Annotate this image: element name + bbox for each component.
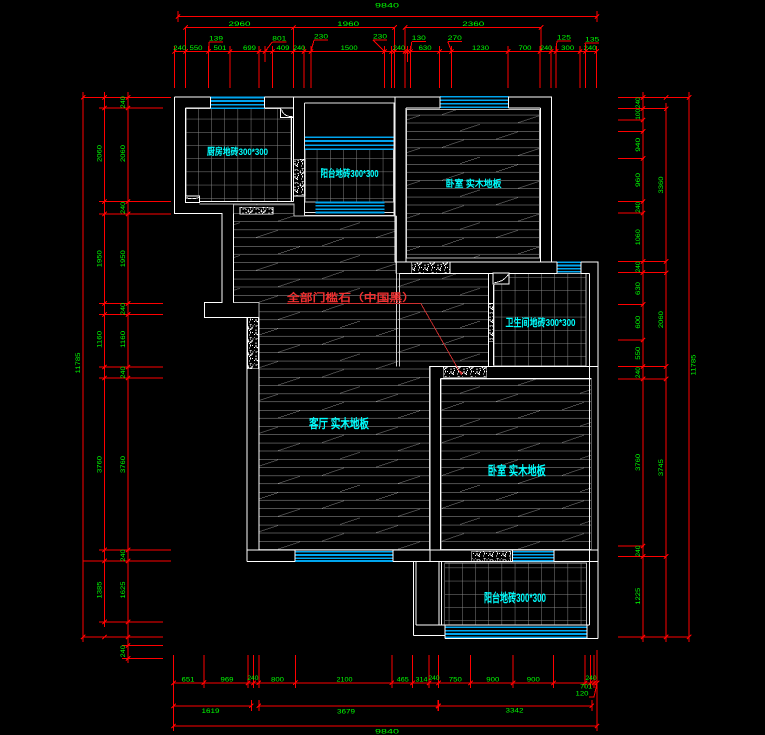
svg-text:11785: 11785 <box>75 352 82 374</box>
svg-text:230: 230 <box>314 34 329 41</box>
svg-text:700: 700 <box>519 45 533 52</box>
svg-text:240: 240 <box>293 45 306 52</box>
svg-text:240: 240 <box>540 45 553 52</box>
svg-text:960: 960 <box>635 172 642 187</box>
svg-text:240: 240 <box>635 201 642 213</box>
svg-text:630: 630 <box>635 281 642 295</box>
svg-text:阳台地砖300*300: 阳台地砖300*300 <box>321 167 379 180</box>
svg-text:1060: 1060 <box>635 229 642 246</box>
svg-text:2960: 2960 <box>229 21 252 28</box>
svg-text:701: 701 <box>580 684 593 691</box>
svg-text:240: 240 <box>635 545 642 557</box>
svg-text:1625: 1625 <box>120 581 127 599</box>
svg-text:3745: 3745 <box>658 459 665 477</box>
svg-text:2360: 2360 <box>462 21 485 28</box>
svg-text:300: 300 <box>561 45 575 52</box>
svg-text:120: 120 <box>576 691 590 698</box>
svg-text:135: 135 <box>585 37 600 44</box>
svg-text:900: 900 <box>486 676 500 683</box>
svg-text:900: 900 <box>527 676 541 683</box>
svg-text:240: 240 <box>120 366 127 379</box>
svg-text:240: 240 <box>120 201 127 214</box>
svg-text:550: 550 <box>635 346 642 360</box>
svg-text:651: 651 <box>182 676 196 683</box>
svg-text:1950: 1950 <box>120 250 127 268</box>
svg-text:卫生间地砖300*300: 卫生间地砖300*300 <box>506 316 576 329</box>
svg-text:1385: 1385 <box>97 581 104 599</box>
svg-text:630: 630 <box>419 45 433 52</box>
svg-text:940: 940 <box>635 137 642 152</box>
svg-text:卧室 实木地板: 卧室 实木地板 <box>446 178 502 190</box>
svg-text:600: 600 <box>635 315 642 329</box>
svg-text:9840: 9840 <box>375 3 400 10</box>
svg-text:969: 969 <box>221 676 235 683</box>
svg-text:3760: 3760 <box>635 453 642 471</box>
svg-text:240: 240 <box>247 675 259 682</box>
svg-text:501: 501 <box>214 45 228 52</box>
svg-text:3679: 3679 <box>337 709 356 716</box>
svg-text:314: 314 <box>416 676 429 683</box>
svg-text:240: 240 <box>120 645 127 658</box>
svg-text:全部门槛石（中国黑）: 全部门槛石（中国黑） <box>286 291 415 304</box>
svg-text:2060: 2060 <box>120 144 127 162</box>
svg-text:240: 240 <box>635 97 642 109</box>
svg-text:240: 240 <box>120 549 127 562</box>
svg-text:699: 699 <box>243 45 257 52</box>
svg-text:1230: 1230 <box>472 45 490 52</box>
svg-text:550: 550 <box>190 45 204 52</box>
svg-text:1160: 1160 <box>120 330 127 348</box>
svg-text:240: 240 <box>393 45 406 52</box>
svg-text:139: 139 <box>209 36 224 43</box>
svg-text:125: 125 <box>557 35 572 42</box>
svg-text:1225: 1225 <box>635 587 642 605</box>
svg-text:240: 240 <box>120 302 127 315</box>
svg-text:465: 465 <box>397 676 410 683</box>
svg-text:2060: 2060 <box>97 144 104 162</box>
svg-text:240: 240 <box>586 675 598 682</box>
svg-text:409: 409 <box>277 45 291 52</box>
svg-text:1619: 1619 <box>202 708 221 715</box>
svg-text:9840: 9840 <box>375 729 400 735</box>
svg-text:240: 240 <box>173 45 187 52</box>
svg-text:1160: 1160 <box>97 330 104 348</box>
svg-text:厨房地砖300*300: 厨房地砖300*300 <box>207 146 268 158</box>
svg-text:750: 750 <box>449 676 463 683</box>
svg-text:11785: 11785 <box>691 354 698 376</box>
svg-text:阳台地砖300*300: 阳台地砖300*300 <box>484 590 546 605</box>
svg-text:240: 240 <box>429 675 441 682</box>
svg-text:270: 270 <box>448 35 463 42</box>
svg-text:800: 800 <box>271 676 285 683</box>
svg-text:1960: 1960 <box>337 21 360 28</box>
svg-text:240: 240 <box>120 96 127 109</box>
svg-text:240: 240 <box>635 261 642 273</box>
svg-text:240: 240 <box>635 367 642 379</box>
svg-text:卧室 实木地板: 卧室 实木地板 <box>488 463 546 478</box>
svg-text:130: 130 <box>412 35 427 42</box>
svg-text:2100: 2100 <box>337 676 354 683</box>
svg-text:3760: 3760 <box>120 455 127 473</box>
svg-text:1500: 1500 <box>341 45 359 52</box>
svg-text:2060: 2060 <box>658 311 665 329</box>
svg-text:3760: 3760 <box>97 455 104 473</box>
svg-text:1950: 1950 <box>97 250 104 268</box>
svg-text:3360: 3360 <box>658 176 665 194</box>
svg-text:230: 230 <box>373 34 388 41</box>
svg-text:客厅 实木地板: 客厅 实木地板 <box>308 416 369 431</box>
svg-text:100: 100 <box>635 108 642 120</box>
svg-text:3342: 3342 <box>506 708 525 715</box>
svg-text:801: 801 <box>272 36 287 43</box>
